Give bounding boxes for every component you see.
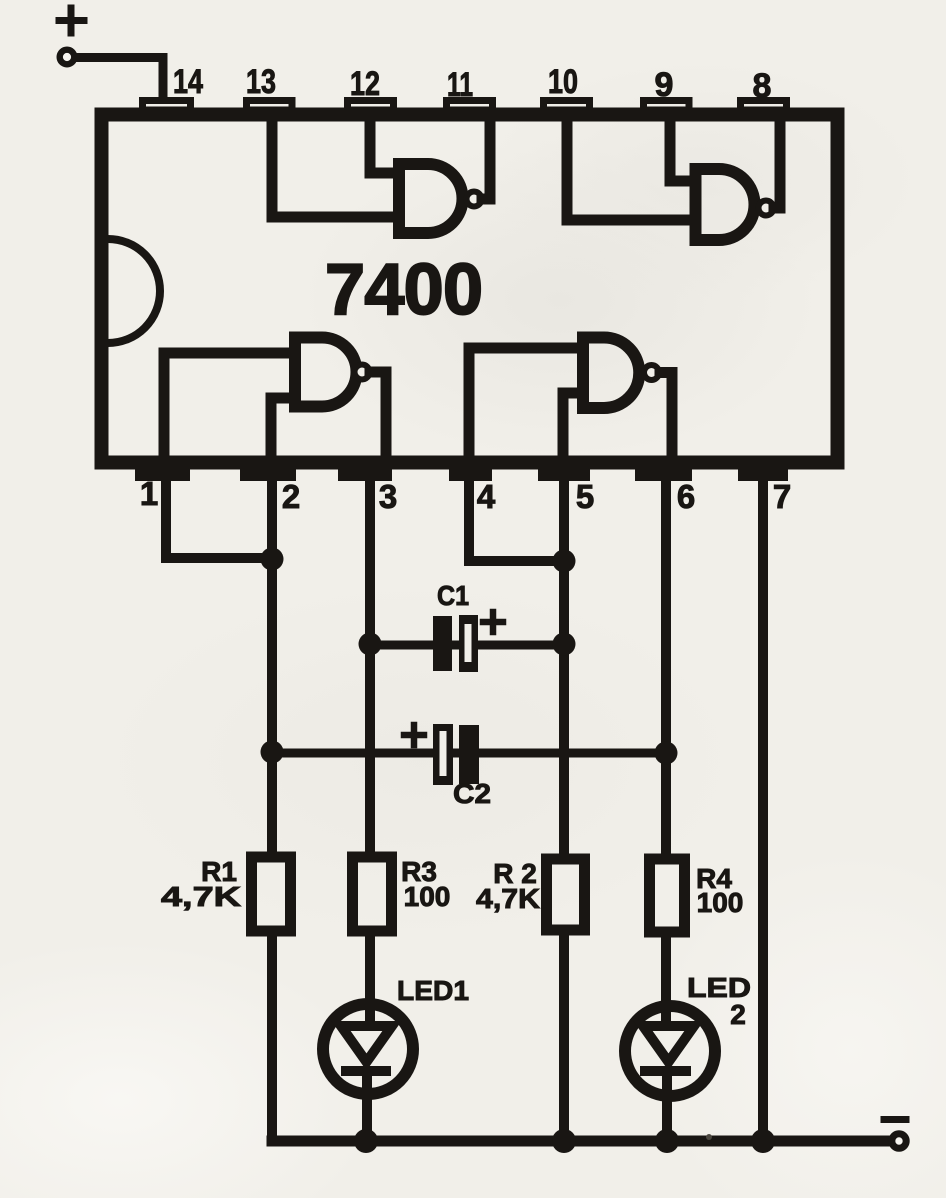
svg-text:14: 14 [173, 63, 203, 101]
svg-text:9: 9 [655, 66, 674, 104]
svg-text:2: 2 [282, 478, 300, 515]
svg-text:2: 2 [730, 999, 746, 1030]
svg-text:4,7K: 4,7K [476, 883, 540, 914]
svg-text:5: 5 [576, 478, 594, 515]
svg-text:100: 100 [404, 881, 451, 912]
svg-text:7: 7 [773, 478, 791, 515]
svg-text:10: 10 [548, 63, 578, 101]
svg-text:C1: C1 [437, 580, 469, 611]
svg-text:7400: 7400 [325, 250, 483, 330]
svg-text:LED1: LED1 [397, 975, 469, 1006]
svg-text:C2: C2 [453, 778, 491, 809]
svg-text:1: 1 [140, 475, 158, 512]
svg-text:100: 100 [697, 887, 744, 918]
svg-text:4,7K: 4,7K [161, 881, 241, 912]
svg-text:8: 8 [753, 67, 772, 105]
svg-text:13: 13 [246, 63, 276, 101]
svg-text:12: 12 [350, 65, 380, 103]
svg-text:4: 4 [477, 478, 496, 515]
svg-text:11: 11 [447, 66, 473, 104]
svg-text:6: 6 [677, 478, 695, 515]
svg-text:3: 3 [379, 478, 397, 515]
